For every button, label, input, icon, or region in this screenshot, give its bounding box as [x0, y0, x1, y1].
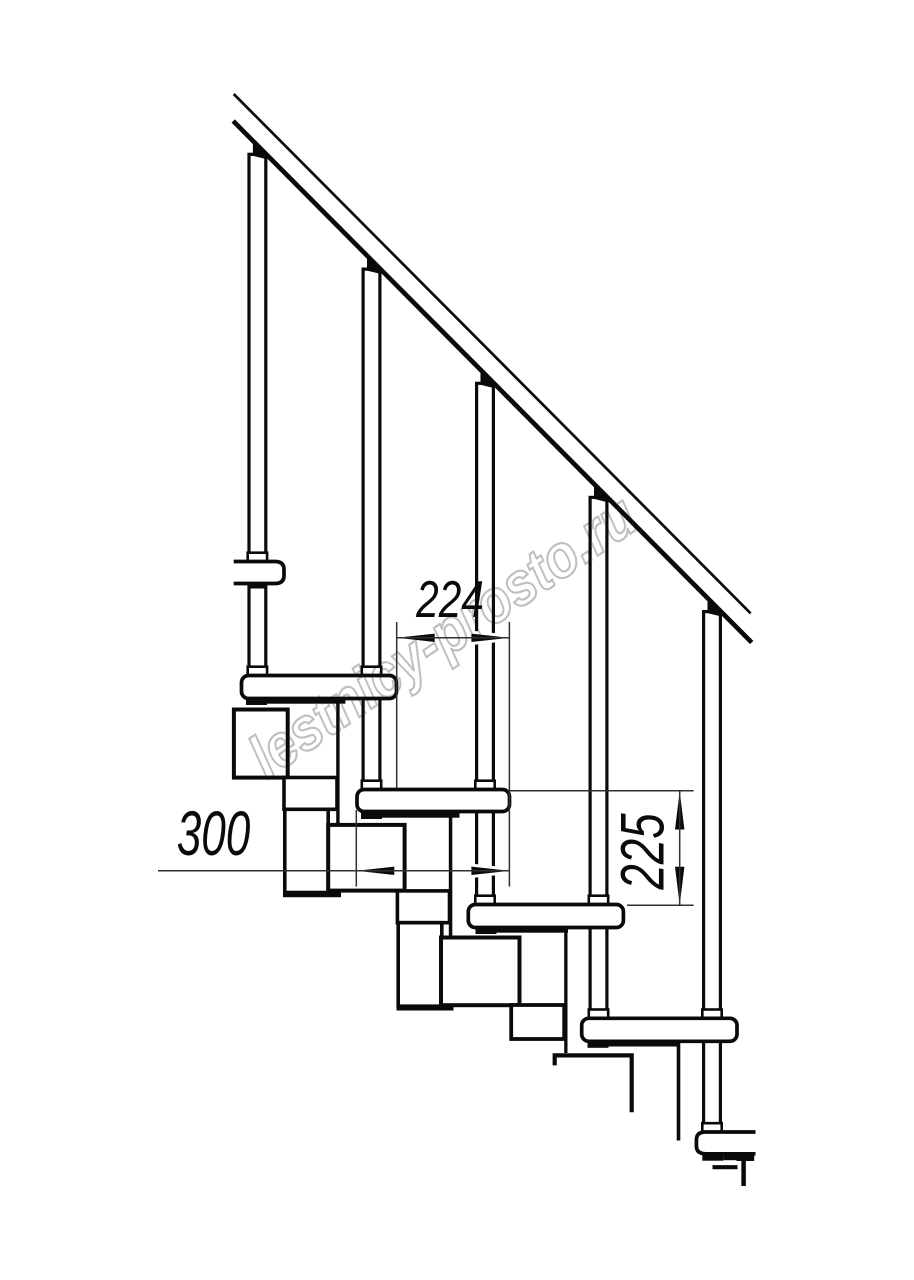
svg-text:225: 225 — [609, 812, 677, 890]
svg-text:300: 300 — [177, 798, 251, 869]
